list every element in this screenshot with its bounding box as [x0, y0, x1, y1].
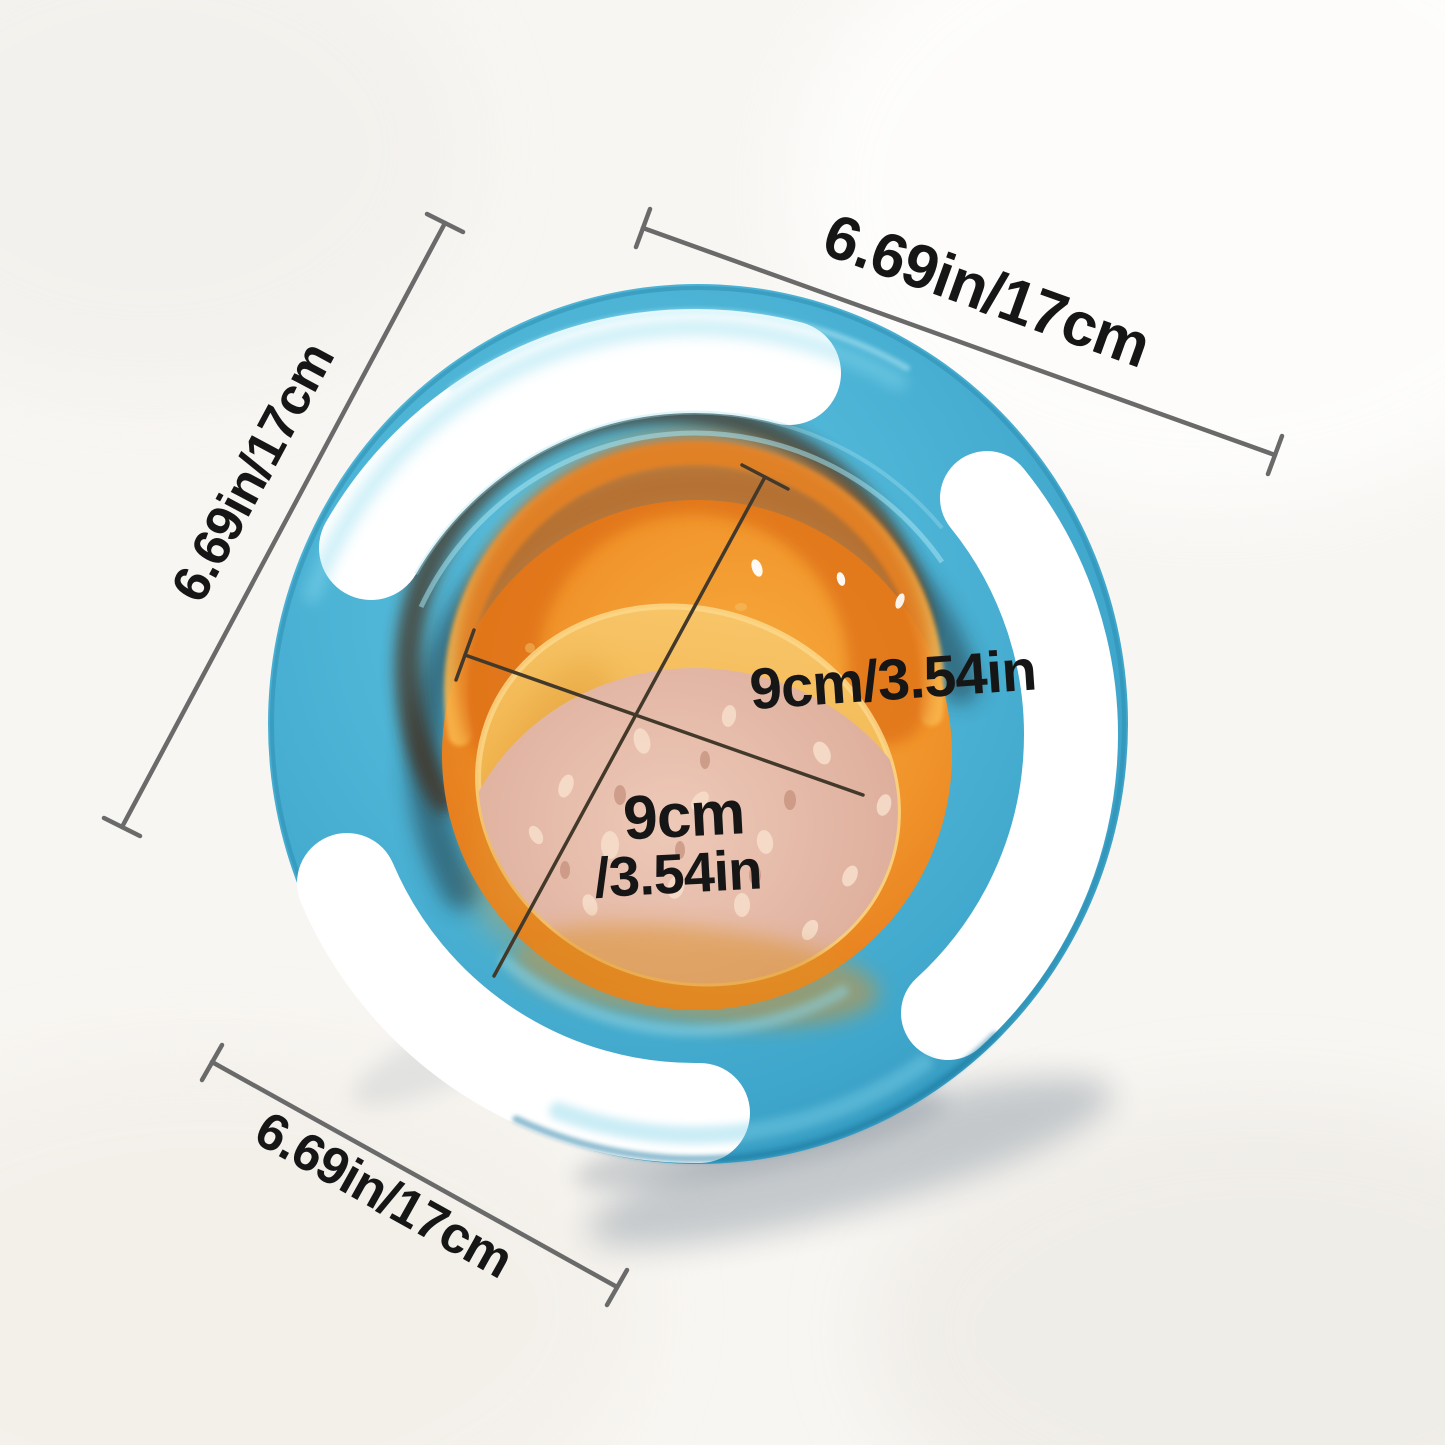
dish-dot-1: [525, 643, 535, 653]
label-inner-depth-suffix: /3.54in: [593, 837, 763, 909]
product-photo: 6.69in/17cm 6.69in/17cm 6.69in/17cm 9cm/…: [0, 0, 1445, 1445]
dish-dot-2: [735, 603, 747, 611]
gyro-bowl: [268, 284, 1128, 1164]
product-photo-canvas: 6.69in/17cm 6.69in/17cm 6.69in/17cm 9cm/…: [0, 0, 1445, 1445]
